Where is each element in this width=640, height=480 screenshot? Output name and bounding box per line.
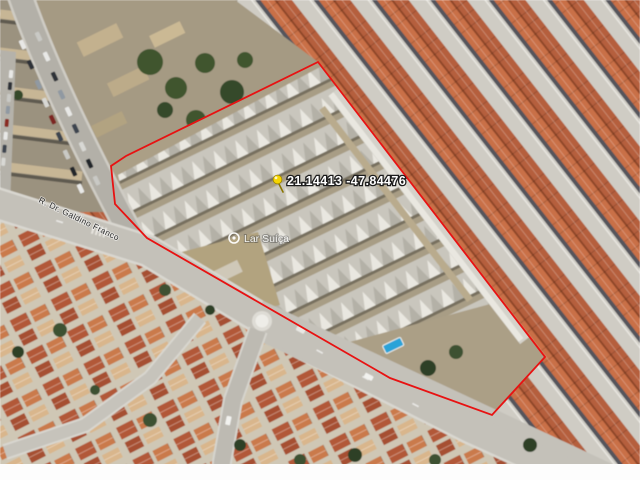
satellite-canvas[interactable]: Lar Suíça R. Dr. Galdino Franco 21.14413… [0, 0, 640, 480]
pin-coordinates-label: 21.14413 -47.84476 [287, 174, 406, 188]
place-label: Lar Suíça [244, 233, 289, 245]
image-bottom-margin [0, 464, 640, 480]
aerial-imagery [0, 0, 640, 480]
satellite-map-view[interactable]: Lar Suíça R. Dr. Galdino Franco 21.14413… [0, 0, 640, 480]
pin-head-icon [273, 175, 282, 184]
